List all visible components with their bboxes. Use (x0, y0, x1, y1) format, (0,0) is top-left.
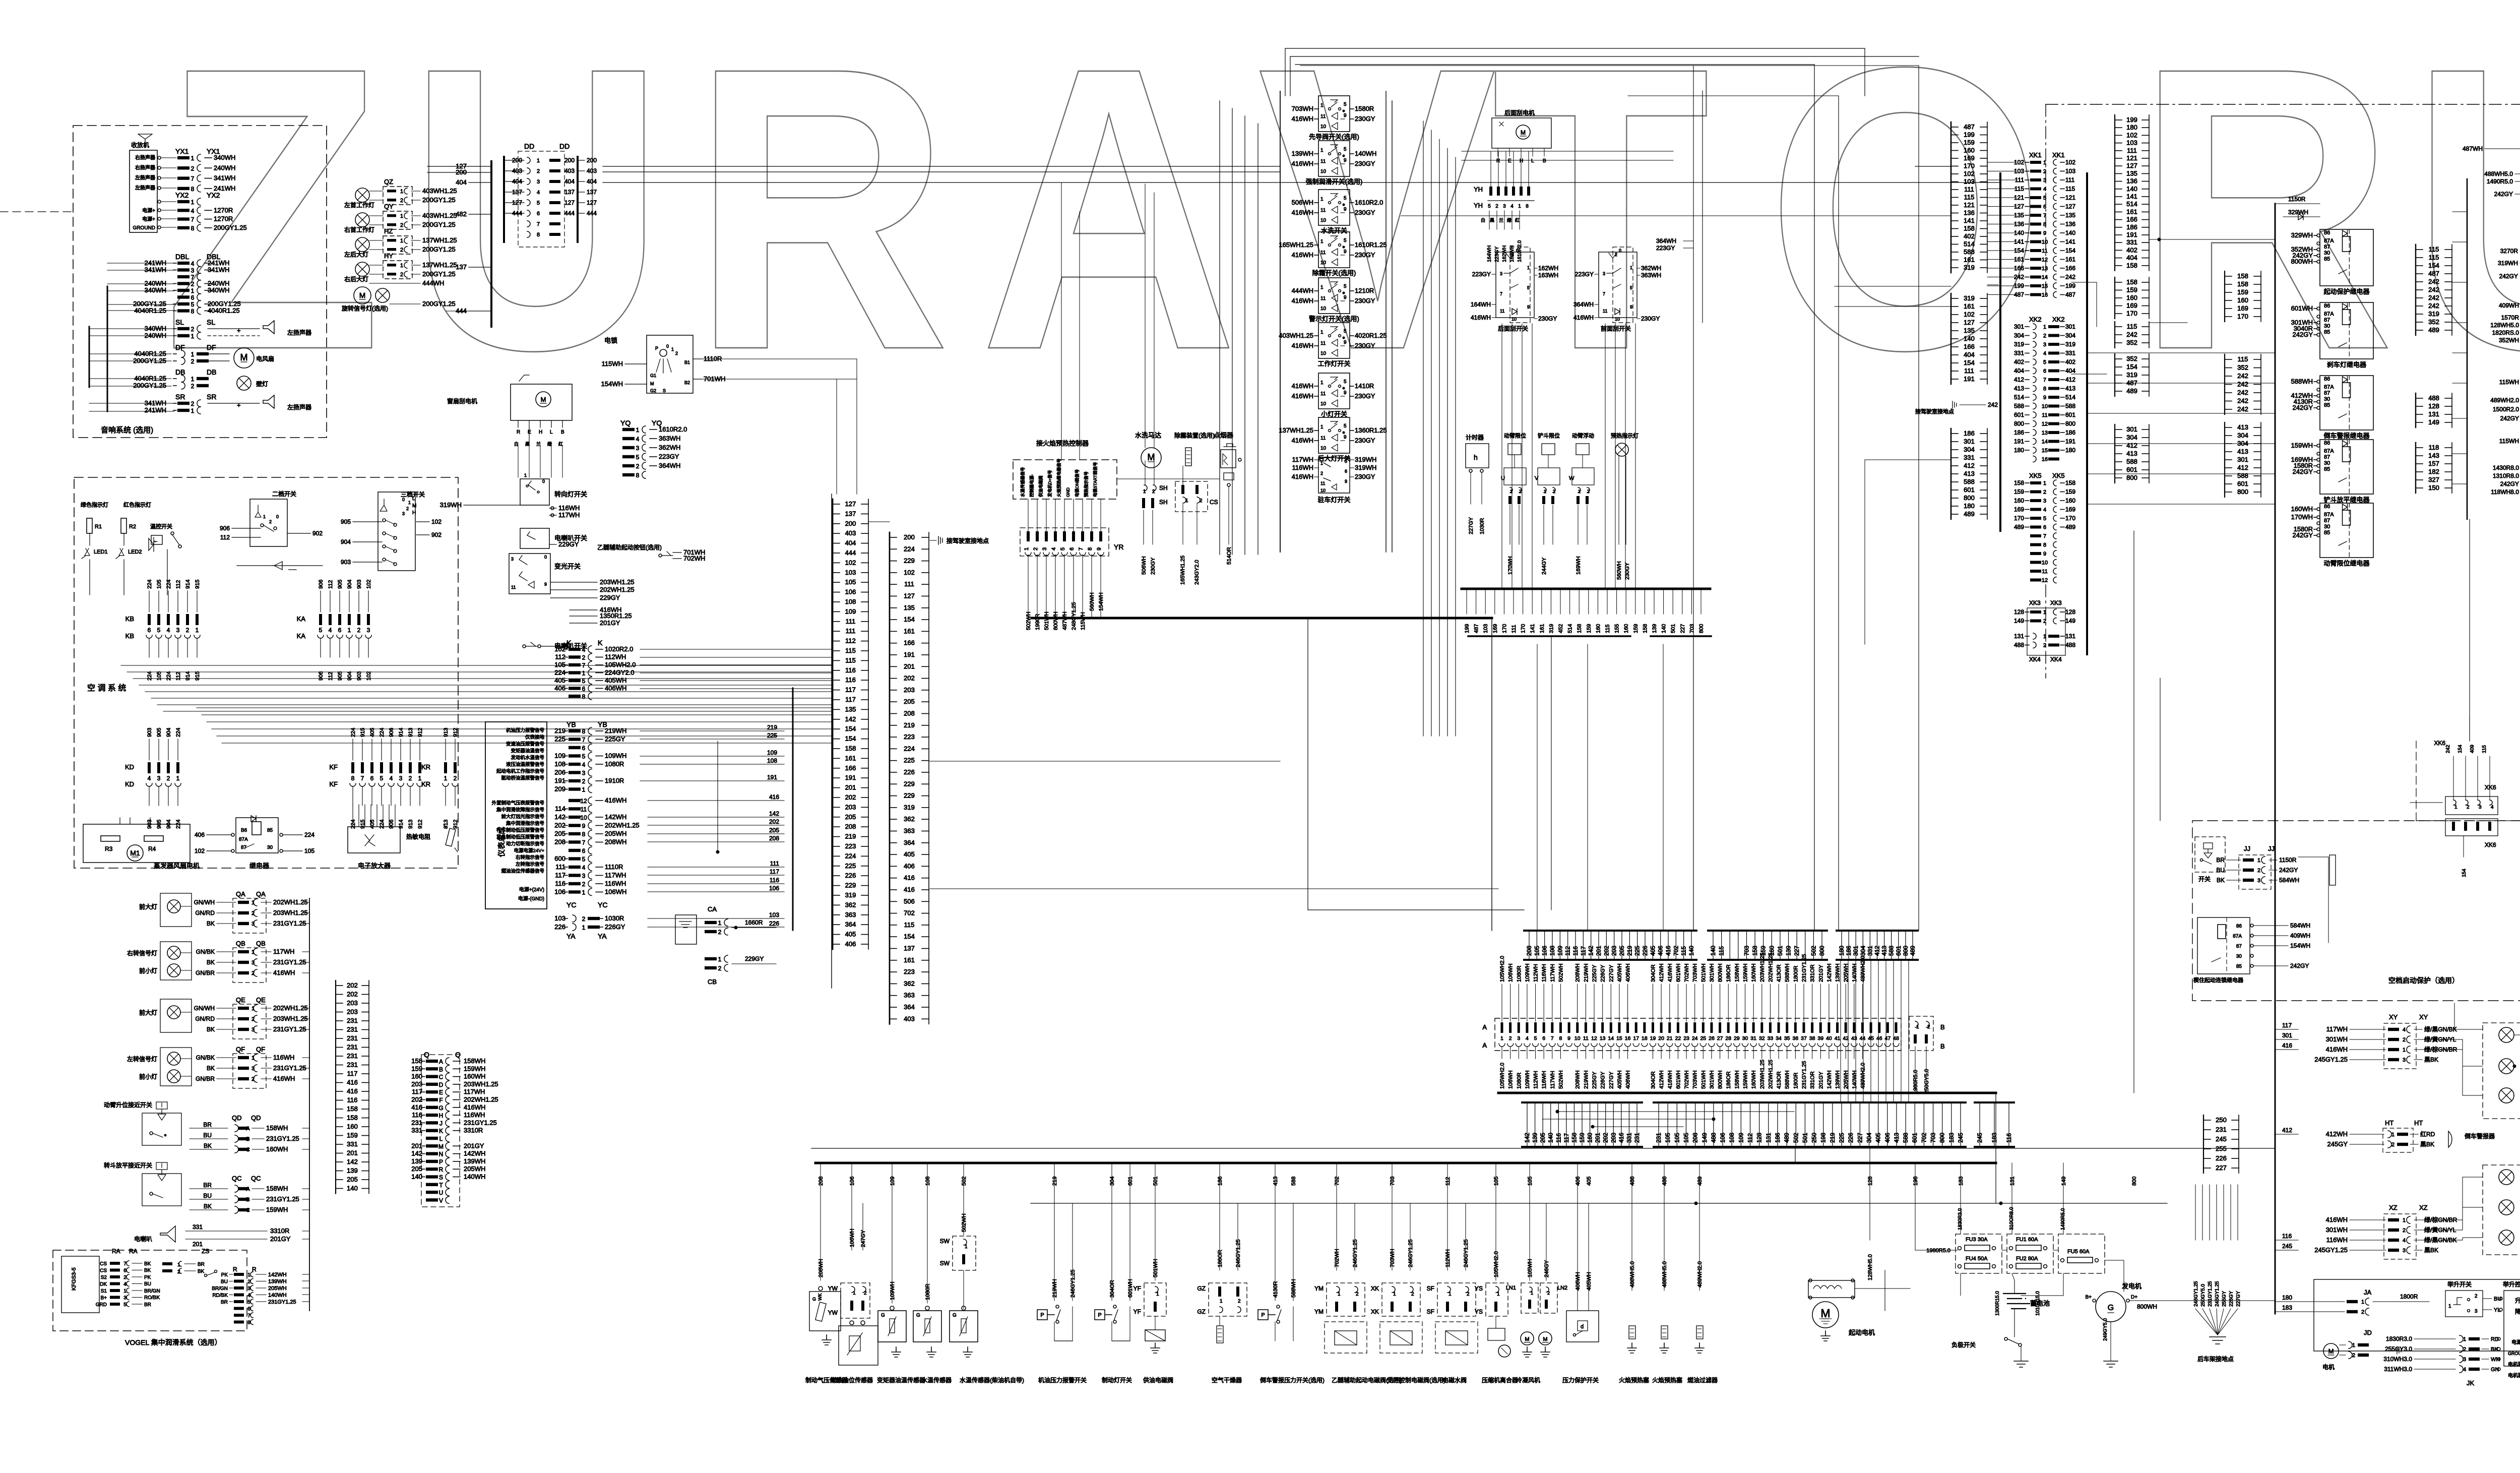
svg-text:488: 488 (1710, 1133, 1717, 1143)
svg-text:47: 47 (1885, 1035, 1891, 1041)
svg-text:159WH: 159WH (2291, 442, 2313, 449)
svg-text:8: 8 (537, 232, 540, 238)
svg-text:38: 38 (1809, 1035, 1815, 1041)
svg-text:161: 161 (1964, 302, 1975, 310)
svg-text:8: 8 (247, 1320, 250, 1326)
svg-text:161: 161 (1539, 624, 1545, 633)
svg-text:128: 128 (2428, 402, 2439, 410)
svg-text:85: 85 (2324, 402, 2330, 408)
svg-text:10: 10 (1320, 260, 1327, 266)
svg-text:3: 3 (2043, 177, 2046, 183)
svg-text:动力切断指示信号: 动力切断指示信号 (506, 841, 544, 847)
svg-text:SR: SR (207, 393, 216, 401)
svg-text:T: T (439, 1182, 443, 1189)
svg-text:85: 85 (2324, 256, 2330, 262)
svg-text:压缩机离合器: 压缩机离合器 (1482, 1376, 1518, 1384)
svg-text:139WH: 139WH (1292, 150, 1313, 157)
svg-text:489WH2.0: 489WH2.0 (1860, 956, 1866, 982)
svg-text:3: 3 (1517, 1035, 1520, 1041)
svg-text:245: 245 (1976, 1133, 1983, 1143)
svg-text:黑BK: 黑BK (2424, 1056, 2438, 1063)
svg-text:8: 8 (351, 775, 355, 782)
svg-text:109WH: 109WH (1525, 1070, 1531, 1089)
svg-text:800: 800 (2131, 1177, 2137, 1186)
svg-text:19: 19 (1650, 1035, 1656, 1041)
svg-text:127: 127 (587, 199, 597, 206)
svg-text:9: 9 (2043, 395, 2046, 401)
svg-text:242: 242 (2237, 372, 2248, 380)
svg-text:3: 3 (251, 1027, 255, 1033)
svg-text:YF: YF (1133, 1308, 1141, 1315)
svg-text:224: 224 (379, 728, 385, 737)
svg-text:85: 85 (267, 828, 273, 833)
svg-text:2: 2 (2391, 1142, 2395, 1148)
svg-text:7: 7 (191, 175, 195, 182)
svg-text:904: 904 (166, 728, 172, 737)
svg-text:247GY: 247GY (860, 1230, 866, 1247)
svg-text:203: 203 (904, 686, 915, 694)
svg-text:514: 514 (2014, 394, 2024, 401)
svg-text:106: 106 (554, 888, 565, 896)
svg-text:117WH: 117WH (558, 511, 580, 519)
svg-text:红色指示灯: 红色指示灯 (123, 501, 151, 508)
svg-text:GN/WH: GN/WH (194, 899, 215, 906)
svg-text:2: 2 (2403, 1037, 2406, 1043)
svg-text:2: 2 (123, 1275, 127, 1280)
svg-text:202WH1.25: 202WH1.25 (464, 1096, 498, 1103)
svg-text:RA: RA (112, 1248, 120, 1255)
svg-text:255GY: 255GY (2222, 1291, 2227, 1307)
svg-text:1080R: 1080R (925, 1284, 931, 1300)
svg-text:G: G (2108, 1304, 2114, 1312)
svg-text:416WH: 416WH (1292, 297, 1313, 304)
svg-text:1610R1.25: 1610R1.25 (1355, 241, 1387, 249)
svg-text:YB: YB (566, 720, 576, 728)
svg-text:DF: DF (207, 343, 216, 351)
svg-text:142: 142 (411, 1150, 422, 1157)
svg-text:5: 5 (1344, 329, 1347, 334)
svg-text:141: 141 (2065, 238, 2075, 245)
svg-text:140: 140 (2014, 229, 2024, 236)
svg-text:XZ: XZ (2419, 1204, 2428, 1211)
svg-text:后车架接地点: 后车架接地点 (2197, 1355, 2234, 1363)
svg-text:37: 37 (1801, 1035, 1807, 1041)
svg-text:0: 0 (544, 555, 547, 560)
svg-text:87: 87 (2324, 244, 2330, 250)
svg-text:3: 3 (1500, 271, 1502, 276)
svg-text:41: 41 (1835, 1035, 1841, 1041)
svg-text:601: 601 (2014, 411, 2024, 418)
svg-text:电喇叭: 电喇叭 (134, 1235, 152, 1243)
svg-text:右扬声器: 右扬声器 (135, 164, 155, 171)
svg-text:225: 225 (1838, 1133, 1845, 1143)
svg-text:左扬声器: 左扬声器 (287, 403, 311, 411)
svg-text:225: 225 (554, 735, 565, 743)
svg-text:YX2: YX2 (207, 191, 220, 199)
svg-text:转向灯开关: 转向灯开关 (554, 490, 587, 498)
svg-text:225: 225 (767, 732, 777, 739)
svg-text:136: 136 (2014, 221, 2024, 228)
svg-text:警示灯开关(选用): 警示灯开关(选用) (1309, 315, 1359, 323)
svg-text:502: 502 (961, 1177, 967, 1186)
svg-text:2: 2 (1509, 1035, 1512, 1041)
svg-text:8: 8 (191, 225, 195, 232)
svg-text:9: 9 (2043, 230, 2046, 236)
svg-text:倒车警报压力开关(选用): 倒车警报压力开关(选用) (1260, 1376, 1325, 1384)
svg-text:117: 117 (2282, 1022, 2292, 1029)
svg-text:DF: DF (175, 343, 185, 351)
svg-text:BR: BR (198, 1262, 205, 1267)
svg-text:16: 16 (2042, 292, 2048, 298)
svg-text:209: 209 (554, 785, 565, 793)
svg-text:117: 117 (845, 696, 856, 703)
svg-text:1: 1 (400, 213, 403, 219)
svg-text:KF: KF (329, 780, 338, 788)
svg-text:2: 2 (247, 1279, 250, 1285)
svg-text:2: 2 (2463, 1346, 2466, 1353)
svg-text:331: 331 (2126, 238, 2137, 246)
svg-text:2: 2 (2467, 805, 2470, 810)
svg-text:B: B (246, 1197, 249, 1203)
svg-text:1: 1 (1578, 489, 1581, 494)
svg-text:39: 39 (1817, 1035, 1823, 1041)
svg-text:202: 202 (845, 793, 856, 801)
svg-text:绿: 绿 (1507, 217, 1511, 223)
svg-text:116: 116 (2282, 1233, 2292, 1240)
svg-text:工作灯开关: 工作灯开关 (1317, 360, 1350, 367)
svg-text:115: 115 (2482, 745, 2487, 753)
svg-text:230GY: 230GY (1150, 557, 1156, 575)
svg-text:11: 11 (1320, 436, 1326, 441)
svg-text:904: 904 (341, 538, 351, 545)
svg-text:416WH: 416WH (1292, 209, 1313, 216)
svg-text:906: 906 (389, 820, 395, 829)
svg-text:143: 143 (2428, 452, 2439, 459)
svg-text:149: 149 (1701, 1133, 1708, 1143)
svg-text:1150R: 1150R (2279, 856, 2297, 864)
svg-text:起动电机工作指示信号: 起动电机工作指示信号 (496, 768, 544, 774)
svg-text:21: 21 (1667, 1035, 1673, 1041)
svg-text:140: 140 (1688, 946, 1695, 956)
svg-text:11: 11 (2042, 248, 2047, 254)
svg-text:111: 111 (846, 618, 856, 625)
svg-text:YM: YM (1314, 1308, 1324, 1315)
svg-text:226: 226 (1642, 946, 1649, 956)
svg-text:203: 203 (347, 1008, 358, 1016)
svg-text:86: 86 (2324, 230, 2330, 236)
svg-text:136: 136 (2065, 221, 2075, 228)
svg-text:158: 158 (2126, 278, 2137, 286)
svg-text:117: 117 (845, 686, 856, 694)
svg-text:159: 159 (1579, 1133, 1586, 1143)
svg-text:242GY: 242GY (2499, 273, 2518, 280)
svg-text:11: 11 (511, 585, 516, 590)
svg-text:0: 0 (276, 514, 279, 519)
svg-text:364: 364 (904, 1003, 915, 1011)
svg-text:87A: 87A (2324, 512, 2334, 518)
svg-text:588: 588 (2014, 403, 2024, 410)
svg-text:489WH2.0: 489WH2.0 (1860, 1063, 1866, 1089)
svg-text:231GY1.25: 231GY1.25 (266, 1195, 299, 1203)
svg-text:GRD: GRD (96, 1302, 107, 1308)
svg-text:158: 158 (1964, 225, 1975, 232)
svg-text:BU: BU (203, 1192, 212, 1199)
svg-text:3: 3 (636, 445, 640, 452)
svg-text:11: 11 (1603, 309, 1607, 314)
svg-text:250: 250 (2216, 1116, 2227, 1124)
svg-text:406: 406 (1657, 946, 1664, 956)
svg-text:202: 202 (347, 991, 358, 998)
svg-text:2: 2 (269, 519, 272, 524)
svg-text:112WH: 112WH (1533, 964, 1539, 982)
svg-text:406WH: 406WH (1625, 963, 1631, 982)
svg-text:914: 914 (185, 671, 191, 681)
svg-text:HY: HY (384, 252, 393, 260)
svg-text:FU3 30A: FU3 30A (1966, 1237, 1988, 1243)
svg-text:137: 137 (845, 510, 856, 517)
svg-text:186: 186 (1217, 1177, 1223, 1186)
svg-text:BK: BK (207, 920, 215, 927)
svg-text:219WH: 219WH (605, 727, 626, 734)
svg-text:231GY1.25: 231GY1.25 (1801, 1061, 1807, 1089)
svg-text:铲斗限位: 铲斗限位 (1538, 432, 1560, 439)
svg-text:5: 5 (1527, 285, 1530, 290)
svg-text:203: 203 (411, 1080, 422, 1088)
svg-text:202: 202 (904, 674, 915, 682)
svg-text:103: 103 (2065, 168, 2075, 175)
svg-text:128: 128 (1867, 1177, 1873, 1186)
svg-text:103: 103 (2014, 168, 2024, 175)
svg-text:C: C (439, 1074, 444, 1081)
svg-text:水洗开关: 水洗开关 (1321, 227, 1347, 234)
svg-text:7: 7 (1603, 291, 1605, 296)
svg-text:R: R (252, 1266, 257, 1273)
svg-text:1270R: 1270R (214, 206, 233, 214)
svg-text:1: 1 (2448, 1304, 2451, 1309)
svg-text:219: 219 (554, 727, 565, 734)
svg-text:111: 111 (846, 627, 856, 635)
svg-text:刹车灯继电器: 刹车灯继电器 (2327, 361, 2366, 369)
svg-text:159WH: 159WH (464, 1065, 485, 1072)
svg-text:128WH5.0: 128WH5.0 (1867, 1254, 1873, 1280)
svg-text:584WH: 584WH (2279, 877, 2299, 884)
svg-text:5: 5 (582, 678, 586, 685)
svg-text:154: 154 (1964, 359, 1975, 366)
svg-text:3: 3 (582, 770, 586, 777)
svg-text:903: 903 (356, 671, 362, 681)
svg-text:154: 154 (845, 735, 856, 743)
svg-text:M: M (412, 503, 416, 509)
svg-text:3: 3 (537, 179, 540, 185)
svg-text:2: 2 (2403, 1227, 2406, 1234)
svg-text:230GY: 230GY (1355, 209, 1375, 216)
svg-text:H: H (539, 429, 542, 435)
svg-text:ZURAVTORU: ZURAVTORU (163, 0, 2520, 434)
svg-text:2: 2 (582, 654, 586, 661)
svg-text:416: 416 (769, 793, 779, 801)
svg-text:200GY1.25: 200GY1.25 (214, 224, 247, 231)
svg-text:231: 231 (347, 1017, 358, 1024)
svg-text:2: 2 (1511, 252, 1514, 257)
svg-text:29: 29 (1734, 1035, 1740, 1041)
svg-text:223GY: 223GY (1494, 247, 1500, 262)
svg-text:108: 108 (925, 1177, 931, 1186)
svg-text:B2: B2 (684, 380, 690, 385)
svg-text:169WH: 169WH (1576, 556, 1582, 575)
svg-text:702WH: 702WH (1684, 963, 1690, 982)
svg-text:3: 3 (511, 557, 514, 562)
svg-text:驻车灯开关: 驻车灯开关 (1317, 496, 1350, 504)
svg-text:106WH: 106WH (1508, 1070, 1514, 1089)
svg-text:489WH2.0: 489WH2.0 (1697, 1261, 1703, 1287)
svg-text:205WH: 205WH (464, 1165, 485, 1173)
svg-text:200GY1.25: 200GY1.25 (422, 270, 456, 278)
svg-text:191: 191 (845, 774, 856, 781)
svg-text:488: 488 (2428, 394, 2439, 402)
svg-text:1110R: 1110R (605, 863, 623, 871)
svg-text:158: 158 (2065, 479, 2075, 486)
svg-text:158: 158 (2014, 479, 2024, 486)
svg-text:1: 1 (718, 956, 722, 963)
svg-text:588: 588 (1902, 1133, 1909, 1143)
svg-text:506WH: 506WH (1292, 199, 1313, 206)
svg-text:246GY1.25: 246GY1.25 (1463, 1239, 1469, 1267)
svg-text:142WH: 142WH (464, 1150, 485, 1157)
svg-text:1: 1 (2043, 160, 2046, 166)
svg-text:200: 200 (845, 520, 856, 527)
svg-text:变速油压报警信号: 变速油压报警信号 (506, 741, 544, 747)
svg-text:905: 905 (337, 580, 343, 589)
svg-text:413: 413 (2126, 450, 2137, 457)
svg-text:左后大灯: 左后大灯 (344, 251, 368, 258)
svg-text:301: 301 (2014, 323, 2024, 330)
svg-text:SL: SL (175, 318, 184, 326)
svg-text:202: 202 (1603, 946, 1610, 956)
svg-text:487: 487 (1474, 624, 1480, 633)
svg-text:186OR: 186OR (1726, 964, 1732, 982)
svg-text:169: 169 (1492, 624, 1498, 633)
svg-text:904: 904 (347, 671, 353, 681)
svg-text:225: 225 (904, 757, 915, 764)
svg-text:403: 403 (845, 529, 856, 537)
svg-text:363: 363 (904, 992, 915, 999)
svg-text:219: 219 (904, 721, 915, 729)
svg-text:405WH: 405WH (1617, 963, 1623, 982)
svg-text:135: 135 (2014, 212, 2024, 219)
svg-text:364: 364 (904, 839, 915, 846)
svg-text:5: 5 (1344, 147, 1347, 152)
svg-text:14: 14 (2042, 275, 2048, 281)
svg-text:702: 702 (904, 909, 915, 917)
svg-text:166: 166 (845, 764, 856, 772)
svg-text:416: 416 (347, 1079, 358, 1086)
svg-text:208: 208 (1692, 1133, 1699, 1143)
svg-text:588: 588 (1964, 478, 1975, 485)
svg-text:154WH: 154WH (2290, 942, 2310, 949)
svg-text:103: 103 (769, 911, 779, 918)
svg-text:246GY1.25: 246GY1.25 (1235, 1239, 1241, 1267)
svg-text:226: 226 (2216, 1154, 2227, 1162)
svg-text:137WH1.25: 137WH1.25 (422, 261, 457, 269)
svg-text:319: 319 (2428, 310, 2439, 318)
svg-text:584WH: 584WH (2290, 922, 2310, 929)
svg-text:1: 1 (191, 376, 195, 383)
svg-text:2: 2 (251, 1076, 255, 1082)
svg-text:F: F (439, 1097, 443, 1104)
svg-text:BK: BK (198, 1269, 205, 1274)
svg-text:202: 202 (347, 981, 358, 989)
svg-text:2: 2 (537, 168, 540, 174)
svg-text:201GY: 201GY (464, 1142, 484, 1149)
svg-text:227: 227 (1793, 946, 1800, 956)
svg-text:352: 352 (2237, 364, 2248, 372)
svg-text:左首工作灯: 左首工作灯 (344, 201, 374, 209)
svg-text:601: 601 (2126, 466, 2137, 473)
svg-text:191: 191 (554, 777, 565, 784)
svg-text:黑BK: 黑BK (2420, 1141, 2434, 1148)
svg-text:开关: 开关 (2198, 876, 2211, 883)
svg-text:1: 1 (2043, 480, 2046, 486)
svg-text:200: 200 (587, 157, 597, 164)
svg-text:1910R: 1910R (605, 777, 624, 784)
svg-text:红: 红 (1515, 217, 1520, 223)
svg-text:914: 914 (185, 580, 191, 589)
svg-text:416: 416 (347, 1087, 358, 1095)
svg-text:180: 180 (2282, 1294, 2292, 1301)
svg-text:RA: RA (129, 1248, 138, 1255)
svg-text:412: 412 (2014, 376, 2024, 383)
svg-text:230GY: 230GY (1624, 562, 1630, 580)
svg-text:230GY: 230GY (1355, 115, 1375, 122)
svg-text:109: 109 (890, 1177, 896, 1186)
svg-text:127: 127 (1964, 319, 1975, 326)
svg-text:117: 117 (1563, 1133, 1570, 1143)
svg-text:319: 319 (1964, 294, 1975, 302)
svg-text:10: 10 (1615, 317, 1620, 322)
svg-text:5: 5 (2043, 359, 2046, 365)
svg-text:LN2: LN2 (1557, 1285, 1567, 1291)
svg-text:1580R: 1580R (1355, 105, 1374, 112)
svg-text:YW: YW (828, 1285, 838, 1292)
svg-text:231: 231 (347, 1061, 358, 1069)
svg-text:KR: KR (421, 780, 430, 788)
svg-text:154WH: 154WH (1098, 592, 1104, 611)
svg-text:158: 158 (411, 1057, 422, 1065)
svg-text:488WH5.0: 488WH5.0 (2484, 170, 2513, 177)
svg-text:BK: BK (207, 1026, 215, 1033)
svg-text:YS: YS (1475, 1285, 1483, 1292)
svg-text:201GY: 201GY (600, 619, 620, 627)
svg-text:489: 489 (2065, 524, 2075, 531)
svg-text:KF: KF (329, 763, 338, 771)
svg-text:487WH: 487WH (2463, 145, 2483, 152)
svg-text:30: 30 (2324, 250, 2330, 256)
svg-text:13: 13 (2042, 266, 2048, 272)
svg-text:116WH: 116WH (558, 504, 580, 512)
svg-text:203: 203 (845, 803, 856, 811)
svg-text:火焰预热继电器信号: 火焰预热继电器信号 (1056, 458, 1061, 497)
svg-text:166: 166 (904, 639, 915, 647)
svg-text:186: 186 (2065, 429, 2075, 436)
svg-text:199: 199 (1464, 624, 1470, 633)
svg-text:444: 444 (587, 210, 597, 217)
svg-text:M: M (541, 396, 546, 403)
svg-text:201: 201 (193, 1241, 203, 1248)
svg-text:16: 16 (1625, 1035, 1631, 1041)
svg-text:6: 6 (537, 211, 540, 217)
svg-text:1: 1 (191, 155, 195, 162)
svg-text:9: 9 (1630, 304, 1632, 310)
